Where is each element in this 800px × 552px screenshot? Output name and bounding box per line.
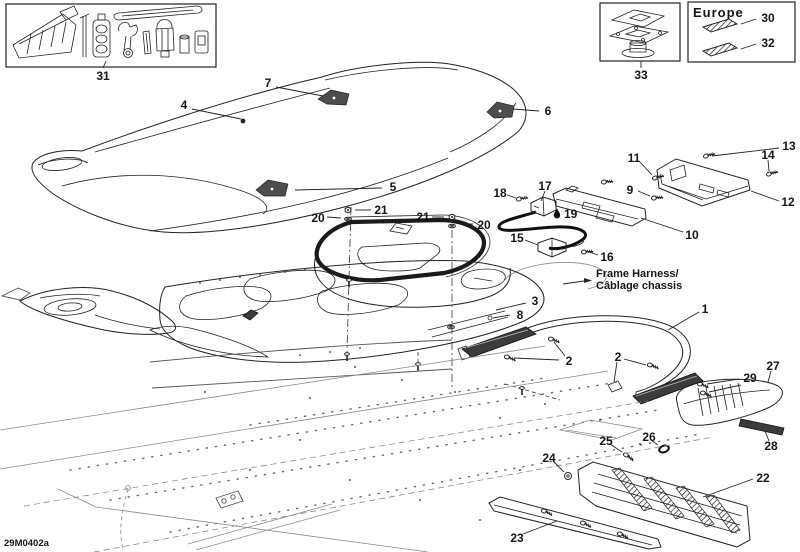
frame-harness-callout: Frame Harness/ Câblage chassis xyxy=(563,268,682,292)
callout-21: 21 xyxy=(374,203,388,217)
screw-2-icon xyxy=(647,363,659,370)
reflector-strip-28 xyxy=(739,419,784,435)
frame-clip xyxy=(243,310,258,320)
callout-15: 15 xyxy=(510,231,524,245)
grip-rails xyxy=(458,327,712,404)
callout-23: 23 xyxy=(510,531,524,545)
frame-harness-label-fr: Câblage chassis xyxy=(596,280,682,292)
tunnel-bracket xyxy=(216,491,243,508)
screw-16-icon xyxy=(581,248,593,256)
callout-30: 30 xyxy=(761,11,775,25)
callout-31: 31 xyxy=(96,69,110,83)
callout-2: 2 xyxy=(615,350,622,364)
housing-12 xyxy=(657,159,750,206)
callout-5: 5 xyxy=(390,180,397,194)
screw-25-icon xyxy=(622,452,634,461)
callout-11: 11 xyxy=(628,151,641,165)
right-arrow-icon xyxy=(584,278,592,283)
callout-10: 10 xyxy=(685,228,699,242)
mounting-fasteners xyxy=(345,207,560,400)
screw-14-icon xyxy=(766,168,778,177)
callout-16: 16 xyxy=(600,250,614,264)
bolt-icon xyxy=(416,363,421,371)
callout-4: 4 xyxy=(181,98,188,112)
tool-kit-box xyxy=(6,4,216,67)
stud-washer-icon xyxy=(448,325,455,329)
callout-9: 9 xyxy=(627,183,634,197)
seat-rivet-4 xyxy=(241,119,246,124)
europe-label: Europe xyxy=(693,5,744,20)
callout-7: 7 xyxy=(265,76,272,90)
taillight-housings xyxy=(553,150,778,226)
callout-21: 21 xyxy=(416,210,430,224)
nut-21-icon xyxy=(449,214,455,219)
callout-1: 1 xyxy=(702,302,709,316)
hardware-box xyxy=(600,3,680,61)
harness-routing-loop xyxy=(505,262,606,289)
callout-33: 33 xyxy=(634,68,648,82)
frame-harness-label-en: Frame Harness/ xyxy=(596,268,679,280)
callout-32: 32 xyxy=(761,36,775,50)
frame-rivets xyxy=(199,269,361,356)
screw-13-icon xyxy=(703,150,715,159)
vent-grille xyxy=(578,462,750,547)
washer-20-icon xyxy=(345,217,352,221)
screw-18-icon xyxy=(516,194,529,202)
callout-13: 13 xyxy=(782,139,796,153)
callout-18: 18 xyxy=(493,186,507,200)
exploded-parts-diagram: Europe xyxy=(0,0,800,552)
callout-28: 28 xyxy=(764,439,778,453)
europe-box: Europe xyxy=(688,2,795,62)
callout-17: 17 xyxy=(538,179,552,193)
nut-21-icon xyxy=(345,207,351,212)
callout-20: 20 xyxy=(477,218,491,232)
callout-29: 29 xyxy=(743,371,757,385)
tunnel-rivets xyxy=(204,366,641,521)
callout-24: 24 xyxy=(542,451,556,465)
callout-27: 27 xyxy=(766,359,780,373)
bolt-icon xyxy=(520,387,525,395)
callout-25: 25 xyxy=(599,434,613,448)
callout-20: 20 xyxy=(311,211,325,225)
callout-labels: 31 33 30 32 7 4 6 5 13 14 11 9 12 10 18 … xyxy=(96,11,796,545)
callout-8: 8 xyxy=(517,308,524,322)
lubricant-droplet-icon xyxy=(554,209,560,219)
callout-12: 12 xyxy=(781,195,795,209)
callout-14: 14 xyxy=(761,148,775,162)
callout-3: 3 xyxy=(532,294,539,308)
screw-9-icon xyxy=(651,194,663,202)
callout-26: 26 xyxy=(642,430,656,444)
washer-24-icon xyxy=(565,473,572,480)
callout-6: 6 xyxy=(545,104,552,118)
screw-icon xyxy=(601,178,613,186)
frame-nose xyxy=(20,288,175,335)
callout-19: 19 xyxy=(564,207,578,221)
callout-2: 2 xyxy=(566,354,573,368)
bin-latch xyxy=(390,223,412,234)
washer-20-icon xyxy=(449,224,456,228)
parts-diagram-page: Europe xyxy=(0,0,800,552)
rail-left xyxy=(462,327,536,357)
drawing-code: 29M0402a xyxy=(4,538,50,549)
callout-22: 22 xyxy=(756,471,770,485)
